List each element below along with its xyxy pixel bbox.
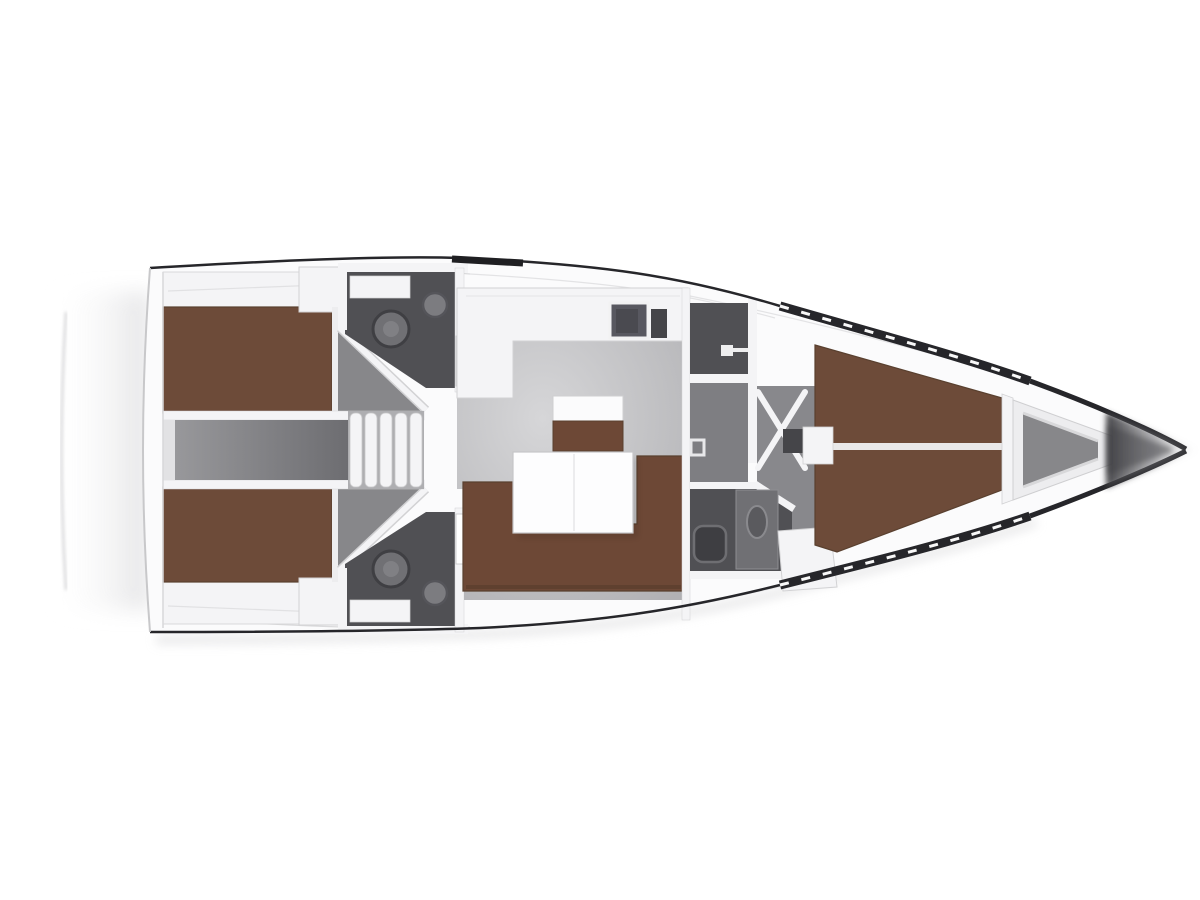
aft-stbd-head-door <box>456 514 463 564</box>
fore-head-floor <box>690 303 748 374</box>
shower-wall-bottom <box>690 571 790 579</box>
washbasin-icon <box>423 581 447 605</box>
aft-stbd-head-shelf <box>350 600 410 622</box>
galley-stove-icon <box>651 309 667 338</box>
stair-tread <box>380 413 392 487</box>
aft-port-head-wall-left <box>338 272 347 330</box>
stair-tread <box>410 413 422 487</box>
washbasin-icon <box>423 293 447 317</box>
vestibule-wall-bottom <box>690 482 762 489</box>
stair-tread <box>395 413 407 487</box>
v-berth-threshold <box>803 427 833 464</box>
aft-stbd-berth-side-strip <box>332 487 338 582</box>
sideboard-base <box>553 421 623 451</box>
floorplan-image <box>0 0 1200 900</box>
v-berth-center-seam <box>812 443 1004 450</box>
companionway-stairs <box>348 411 424 489</box>
fore-head-wall-bottom <box>690 374 757 383</box>
galley-sink-basin <box>616 309 638 333</box>
fwd-bulkhead <box>1002 394 1013 504</box>
stern-shadow <box>52 292 150 610</box>
aft-port-berth-mattress <box>163 307 332 413</box>
fore-head-handle-icon <box>721 345 733 356</box>
aft-port-head-shelf <box>350 276 410 298</box>
salon-fwd-bulkhead <box>682 288 690 620</box>
salon-table <box>513 452 633 533</box>
aft-port-head-wall-top <box>338 263 468 273</box>
toilet-icon <box>694 526 726 562</box>
vestibule-floor <box>690 383 748 482</box>
engine-transom-stub <box>163 420 175 480</box>
companionway-hatch-line <box>452 259 523 263</box>
toilet-bowl-icon <box>383 561 399 577</box>
engine-floor <box>163 420 348 480</box>
yacht-floorplan-svg <box>0 0 1200 900</box>
aft-stbd-berth-mattress <box>163 487 332 582</box>
aft-port-berth-side-strip <box>332 307 338 413</box>
stair-tread <box>365 413 377 487</box>
aft-stbd-head-wall-left <box>338 568 347 626</box>
stair-tread <box>350 413 362 487</box>
washbasin-icon <box>747 506 767 538</box>
sideboard-top <box>553 396 623 421</box>
toilet-bowl-icon <box>383 321 399 337</box>
